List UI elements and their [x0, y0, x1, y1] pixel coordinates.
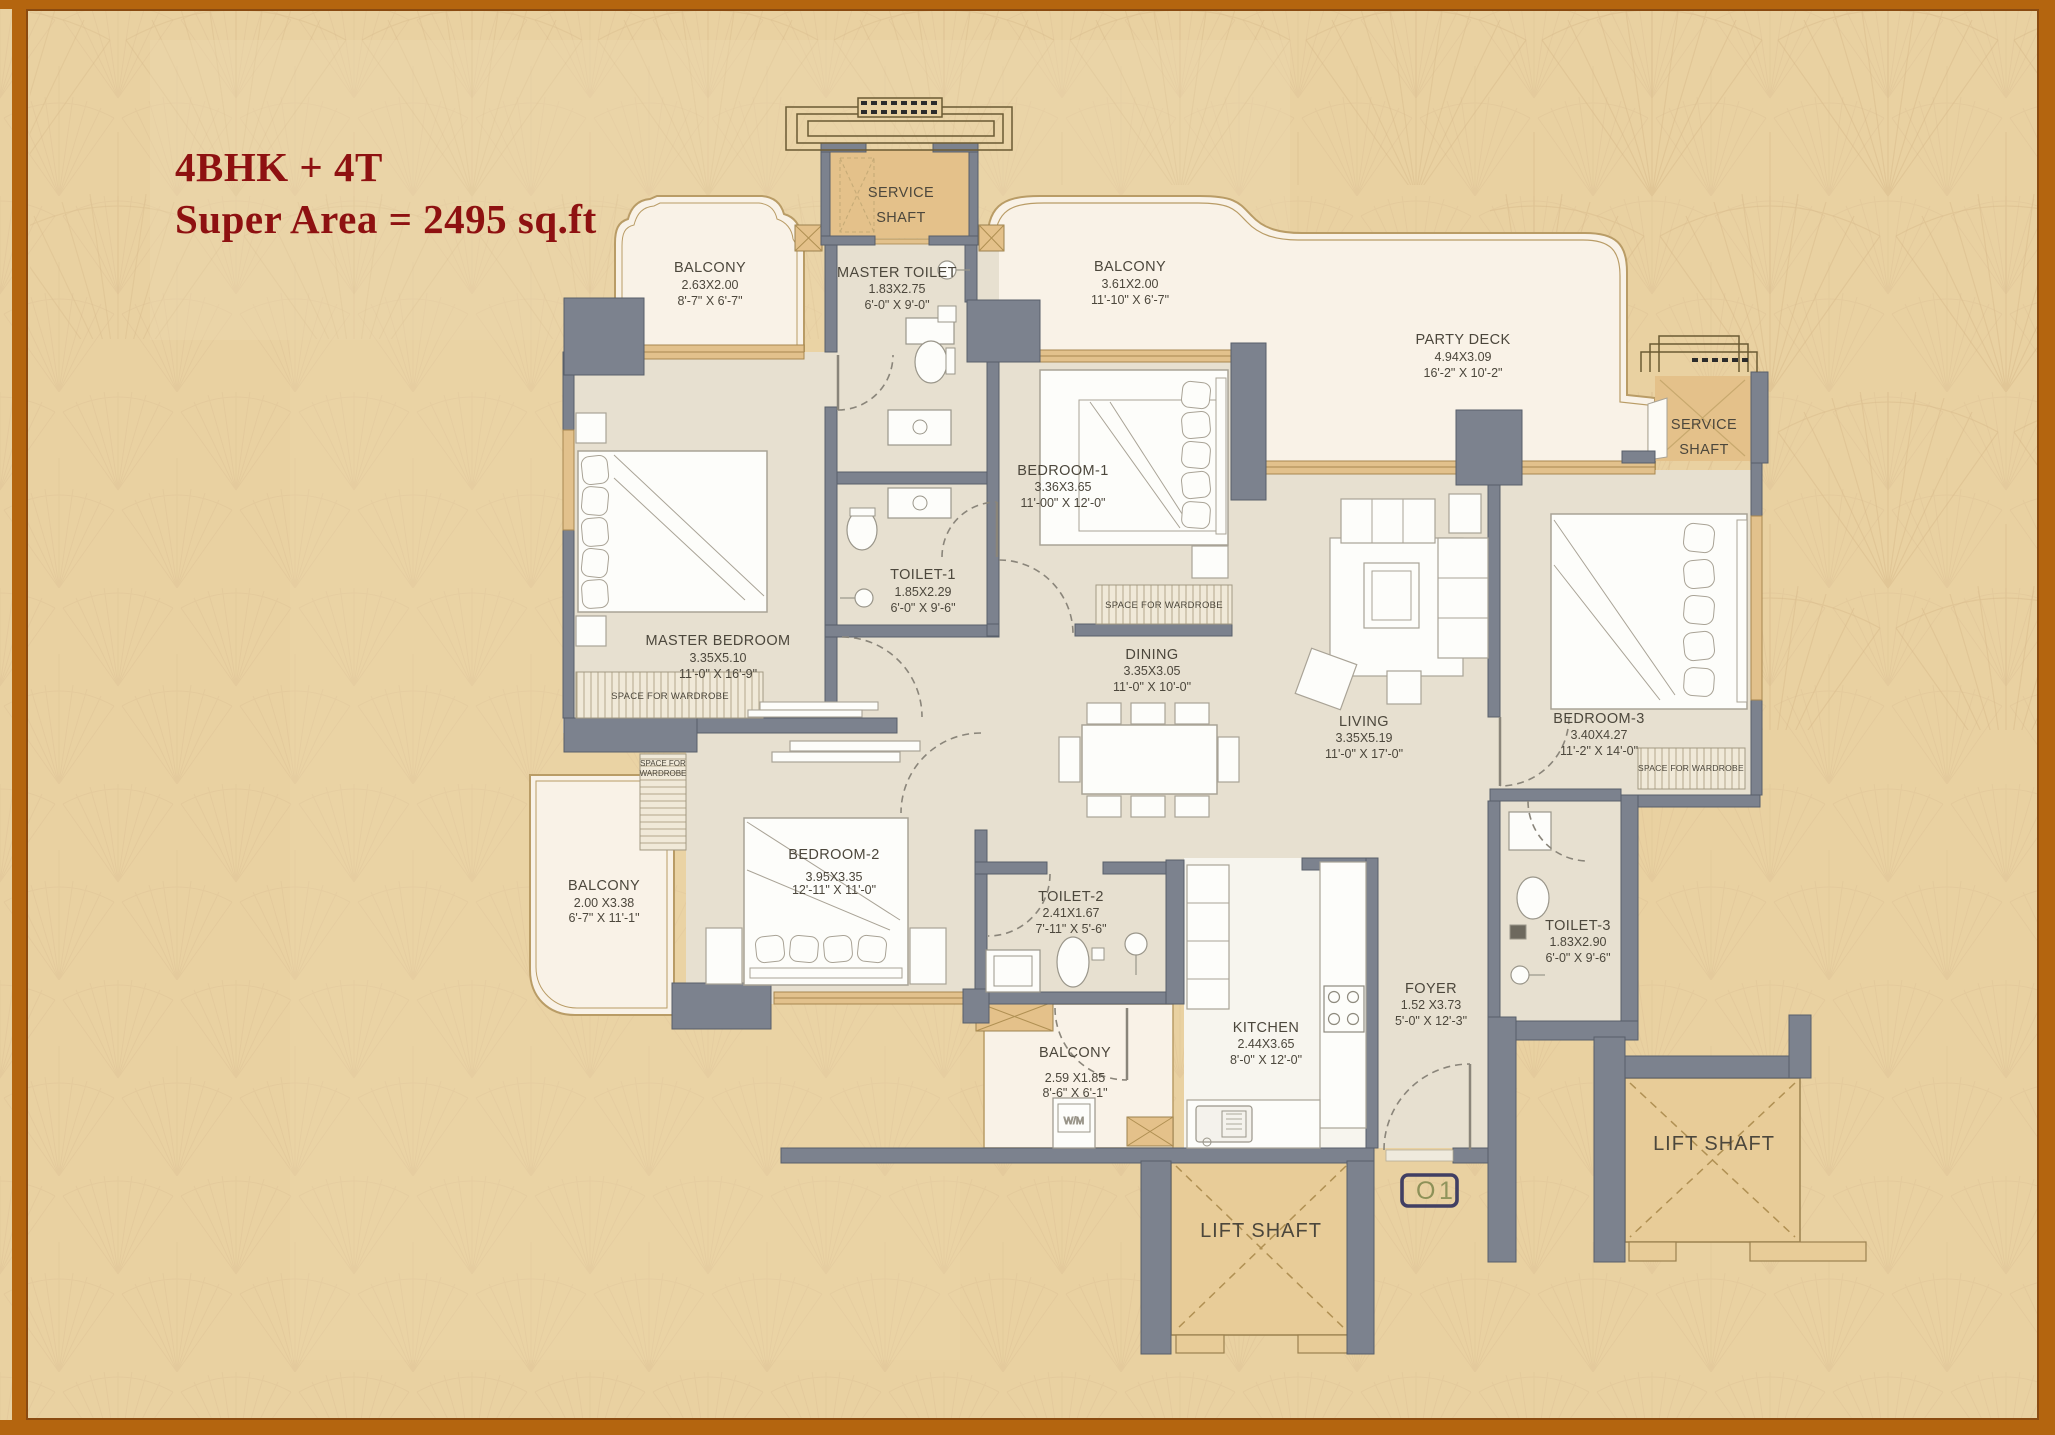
svg-text:1.83X2.75: 1.83X2.75 — [869, 282, 926, 296]
svg-text:3.35X5.10: 3.35X5.10 — [690, 651, 747, 665]
svg-text:LIFT SHAFT: LIFT SHAFT — [1200, 1220, 1322, 1242]
svg-text:BEDROOM-1: BEDROOM-1 — [1017, 463, 1108, 479]
svg-text:3.35X3.05: 3.35X3.05 — [1124, 664, 1181, 678]
svg-text:SHAFT: SHAFT — [1679, 442, 1729, 458]
svg-text:4.94X3.09: 4.94X3.09 — [1435, 350, 1492, 364]
svg-text:MASTER BEDROOM: MASTER BEDROOM — [646, 633, 791, 649]
svg-text:TOILET-3: TOILET-3 — [1545, 918, 1611, 934]
svg-text:FOYER: FOYER — [1405, 981, 1457, 997]
svg-text:BEDROOM-3: BEDROOM-3 — [1553, 711, 1644, 727]
svg-text:W/M: W/M — [1064, 1116, 1085, 1127]
svg-text:2.63X2.00: 2.63X2.00 — [682, 278, 739, 292]
svg-text:BEDROOM-2: BEDROOM-2 — [788, 847, 879, 863]
svg-text:2.44X3.65: 2.44X3.65 — [1238, 1037, 1295, 1051]
svg-text:6'-0" X 9'-6": 6'-0" X 9'-6" — [1545, 951, 1610, 965]
svg-text:8'-7" X 6'-7": 8'-7" X 6'-7" — [677, 294, 742, 308]
svg-text:SPACE FOR WARDROBE: SPACE FOR WARDROBE — [1105, 600, 1223, 611]
svg-text:BALCONY: BALCONY — [674, 260, 746, 276]
svg-text:TOILET-1: TOILET-1 — [890, 567, 956, 583]
svg-text:2.59 X1.85: 2.59 X1.85 — [1045, 1071, 1106, 1085]
svg-text:16'-2" X 10'-2": 16'-2" X 10'-2" — [1424, 366, 1503, 380]
svg-text:1.85X2.29: 1.85X2.29 — [895, 585, 952, 599]
svg-text:6'-7" X 11'-1": 6'-7" X 11'-1" — [568, 911, 639, 925]
svg-text:7'-11" X 5'-6": 7'-11" X 5'-6" — [1035, 922, 1106, 936]
svg-text:11'-00" X 12'-0": 11'-00" X 12'-0" — [1021, 496, 1106, 510]
svg-text:LIVING: LIVING — [1339, 714, 1389, 730]
svg-text:KITCHEN: KITCHEN — [1233, 1020, 1299, 1036]
svg-text:11'-0" X 17'-0": 11'-0" X 17'-0" — [1325, 747, 1403, 761]
svg-text:SPACE FOR WARDROBE: SPACE FOR WARDROBE — [611, 691, 729, 702]
svg-text:1.52 X3.73: 1.52 X3.73 — [1401, 998, 1462, 1012]
svg-text:3.40X4.27: 3.40X4.27 — [1571, 728, 1628, 742]
svg-text:BALCONY: BALCONY — [1094, 259, 1166, 275]
svg-text:SHAFT: SHAFT — [876, 210, 926, 226]
svg-text:BALCONY: BALCONY — [1039, 1045, 1111, 1061]
svg-text:SERVICE: SERVICE — [1671, 417, 1737, 433]
svg-text:8'-6" X 6'-1": 8'-6" X 6'-1" — [1042, 1086, 1107, 1100]
svg-text:12'-11" X 11'-0": 12'-11" X 11'-0" — [792, 883, 876, 897]
svg-text:WARDROBE: WARDROBE — [640, 769, 687, 778]
svg-text:1.83X2.90: 1.83X2.90 — [1550, 935, 1607, 949]
svg-text:O: O — [1416, 1177, 1435, 1205]
svg-text:5'-0" X 12'-3": 5'-0" X 12'-3" — [1395, 1014, 1467, 1028]
svg-text:6'-0" X 9'-0": 6'-0" X 9'-0" — [864, 298, 929, 312]
svg-text:3.35X5.19: 3.35X5.19 — [1336, 731, 1393, 745]
svg-text:4BHK + 4T: 4BHK + 4T — [175, 144, 383, 190]
svg-text:1: 1 — [1439, 1177, 1453, 1205]
svg-text:3.61X2.00: 3.61X2.00 — [1102, 277, 1159, 291]
svg-text:Super Area = 2495 sq.ft: Super Area = 2495 sq.ft — [175, 196, 597, 242]
svg-text:11'-2" X 14'-0": 11'-2" X 14'-0" — [1560, 744, 1638, 758]
svg-text:SPACE FOR: SPACE FOR — [640, 759, 686, 768]
svg-text:8'-0" X 12'-0": 8'-0" X 12'-0" — [1230, 1053, 1302, 1067]
svg-text:2.00 X3.38: 2.00 X3.38 — [574, 896, 635, 910]
svg-text:11'-0" X 10'-0": 11'-0" X 10'-0" — [1113, 680, 1191, 694]
svg-text:TOILET-2: TOILET-2 — [1038, 889, 1104, 905]
svg-text:BALCONY: BALCONY — [568, 878, 640, 894]
svg-text:SERVICE: SERVICE — [868, 185, 934, 201]
svg-text:3.36X3.65: 3.36X3.65 — [1035, 480, 1092, 494]
svg-text:6'-0" X 9'-6": 6'-0" X 9'-6" — [890, 601, 955, 615]
svg-text:MASTER TOILET: MASTER TOILET — [837, 265, 957, 281]
svg-text:11'-10" X 6'-7": 11'-10" X 6'-7" — [1091, 293, 1169, 307]
svg-text:DINING: DINING — [1125, 647, 1178, 663]
svg-text:11'-0" X 16'-9": 11'-0" X 16'-9" — [679, 667, 757, 681]
svg-text:3.95X3.35: 3.95X3.35 — [806, 870, 863, 884]
svg-text:SPACE FOR WARDROBE: SPACE FOR WARDROBE — [1638, 763, 1744, 773]
svg-text:LIFT SHAFT: LIFT SHAFT — [1653, 1133, 1775, 1155]
svg-text:PARTY DECK: PARTY DECK — [1415, 332, 1510, 348]
svg-text:2.41X1.67: 2.41X1.67 — [1043, 906, 1100, 920]
